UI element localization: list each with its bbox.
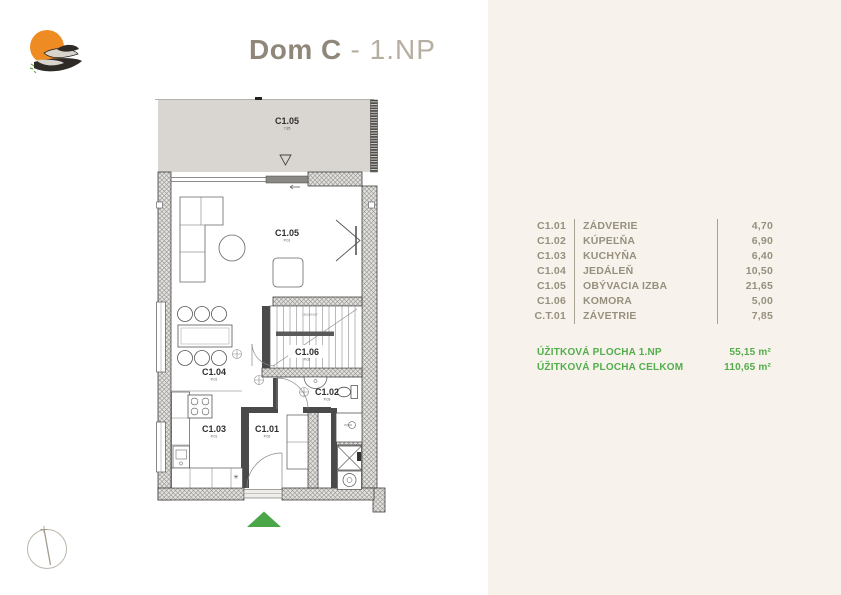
summary-row-total: ÚŽITKOVÁ PLOCHA CELKOM 110,65 m² xyxy=(537,360,771,375)
legend-name: OBÝVACIA IZBA xyxy=(575,279,718,294)
floor-plan: C1.05 7,85 xyxy=(150,90,400,535)
summary-value: 55,15 m² xyxy=(729,345,771,360)
stair-note: 18x250/167 xyxy=(302,313,318,317)
terrace-window xyxy=(171,176,308,189)
legend-name: JEDÁLEŇ xyxy=(575,264,718,279)
legend-name: KUCHYŇA xyxy=(575,249,718,264)
legend-area: 6,40 xyxy=(718,249,775,264)
wall-marker xyxy=(369,202,375,208)
compass-needle xyxy=(44,529,51,565)
legend-area: 6,90 xyxy=(718,234,775,249)
staircase: 18x250/167 C1.06 P.02 xyxy=(270,306,362,368)
living-sublabel: P.01 xyxy=(284,239,291,243)
wall-stairs-bath xyxy=(262,368,362,377)
wall-bottom-left xyxy=(158,488,244,500)
dining-table xyxy=(178,325,232,347)
summary-value: 110,65 m² xyxy=(724,360,771,375)
legend-area: 10,50 xyxy=(718,264,775,279)
north-compass xyxy=(10,505,90,585)
bath-sublabel: P.03 xyxy=(324,398,331,402)
stove xyxy=(188,395,212,418)
legend-area: 5,00 xyxy=(718,294,775,309)
legend-area: 7,85 xyxy=(718,309,775,324)
legend-name: KOMORA xyxy=(575,294,718,309)
legend-area: 4,70 xyxy=(718,219,775,234)
entrance-arrow-icon xyxy=(247,512,281,528)
shower-cabinet xyxy=(336,413,362,442)
dimension-ruler-strip xyxy=(371,100,378,172)
page-title: Dom C - 1.NP xyxy=(249,34,436,66)
summary-row-floor: ÚŽITKOVÁ PLOCHA 1.NP 55,15 m² xyxy=(537,345,771,360)
wall-living-stairs xyxy=(273,297,362,306)
swallow-sun-logo xyxy=(24,26,88,80)
wall-right xyxy=(362,186,377,488)
legend-code: C1.04 xyxy=(528,264,575,279)
dining-sublabel: P.01 xyxy=(211,378,218,382)
legend-code: C.T.01 xyxy=(528,309,575,324)
sofa xyxy=(180,197,223,282)
entry-hall: C1.01 P.02 xyxy=(244,415,308,498)
legend-code: C1.03 xyxy=(528,249,575,264)
dining-set xyxy=(178,307,233,366)
legend-name: ZÁVETRIE xyxy=(575,309,718,324)
kitchen-sink xyxy=(173,446,190,468)
entry-sublabel: P.02 xyxy=(264,435,271,439)
window-left-1 xyxy=(157,302,166,372)
room-legend-table: C1.01 ZÁDVERIE 4,70 C1.02 KÚPEĽŇA 6,90 C… xyxy=(528,219,775,324)
bath-label: C1.02 xyxy=(315,387,339,397)
summary-label: ÚŽITKOVÁ PLOCHA CELKOM xyxy=(537,360,683,375)
coffee-table xyxy=(219,235,245,261)
utility-column xyxy=(336,413,362,490)
dining-label: C1.04 xyxy=(202,367,226,377)
kitchen-sublabel: P.01 xyxy=(211,435,218,439)
terrace-label: C1.05 xyxy=(275,116,299,126)
terrace-sublabel: 7,85 xyxy=(284,127,291,131)
fireplace-chevron xyxy=(336,220,360,261)
wall-top-right xyxy=(308,172,362,186)
entry-label: C1.01 xyxy=(255,424,279,434)
wall-entry-right xyxy=(308,412,318,488)
terrace-door xyxy=(266,176,308,183)
stairs-sublabel: P.02 xyxy=(304,358,311,362)
area-summary: ÚŽITKOVÁ PLOCHA 1.NP 55,15 m² ÚŽITKOVÁ P… xyxy=(537,345,771,375)
wall-marker xyxy=(157,202,163,208)
brochure-page: Dom C - 1.NP C1.05 7,85 xyxy=(0,0,841,595)
page-title-suffix: - 1.NP xyxy=(342,34,436,65)
living-label: C1.05 xyxy=(275,228,299,238)
compass-north-cross xyxy=(41,526,48,533)
legend-code: C1.06 xyxy=(528,294,575,309)
page-title-main: Dom C xyxy=(249,34,342,65)
legend-code: C1.01 xyxy=(528,219,575,234)
legend-code: C1.05 xyxy=(528,279,575,294)
terrace-area: C1.05 7,85 xyxy=(155,97,378,172)
kitchen-counter-bottom xyxy=(172,468,243,488)
window-left-2 xyxy=(157,422,166,472)
kitchen-mark: ✳ xyxy=(233,474,238,481)
summary-label: ÚŽITKOVÁ PLOCHA 1.NP xyxy=(537,345,662,360)
legend-code: C1.02 xyxy=(528,234,575,249)
legend-name: ZÁDVERIE xyxy=(575,219,718,234)
pouf-table xyxy=(273,258,303,287)
kitchen: ✳ C1.03 P.01 xyxy=(171,391,243,488)
stairs-label: C1.06 xyxy=(295,347,319,357)
legend-area: 21,65 xyxy=(718,279,775,294)
door-entry xyxy=(247,453,282,488)
toilet xyxy=(338,387,351,397)
legend-name: KÚPEĽŇA xyxy=(575,234,718,249)
kitchen-label: C1.03 xyxy=(202,424,226,434)
door-bath xyxy=(277,378,308,409)
